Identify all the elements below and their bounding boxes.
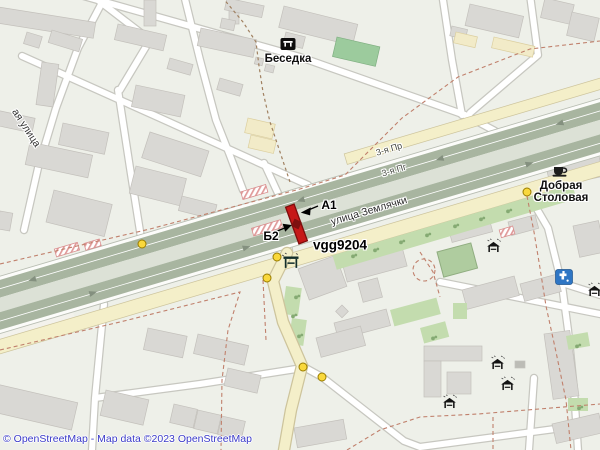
gazebo-icon: [281, 38, 296, 50]
yellow-side-street: [273, 253, 302, 450]
stop-b-label: Б2: [263, 229, 278, 243]
map-tile-layer: [0, 0, 600, 450]
picnic-shelter-icon: [443, 395, 457, 408]
green-roof-building: [333, 37, 380, 66]
marker-id-label: vgg9204: [313, 238, 367, 253]
map-attribution[interactable]: © OpenStreetMap - Map data ©2023 OpenStr…: [3, 433, 252, 445]
sports-pitch: [437, 243, 478, 277]
picnic-shelter-icon: [491, 356, 505, 369]
gazebo-label: Беседка: [265, 53, 312, 65]
picnic-shelter-icon: [501, 377, 515, 390]
cafe-poi-label-line2: Столовая: [534, 192, 589, 204]
cafe-icon: [553, 167, 567, 177]
picnic-shelter-icon: [487, 239, 501, 252]
drinking-water-icon: [556, 270, 573, 285]
cafe-poi-label-line1: Добрая: [540, 180, 583, 192]
map-canvas[interactable]: Беседка 3-я Пр 3-я Пг улица Землячки ая …: [0, 0, 600, 450]
stop-a-label: А1: [321, 198, 336, 212]
